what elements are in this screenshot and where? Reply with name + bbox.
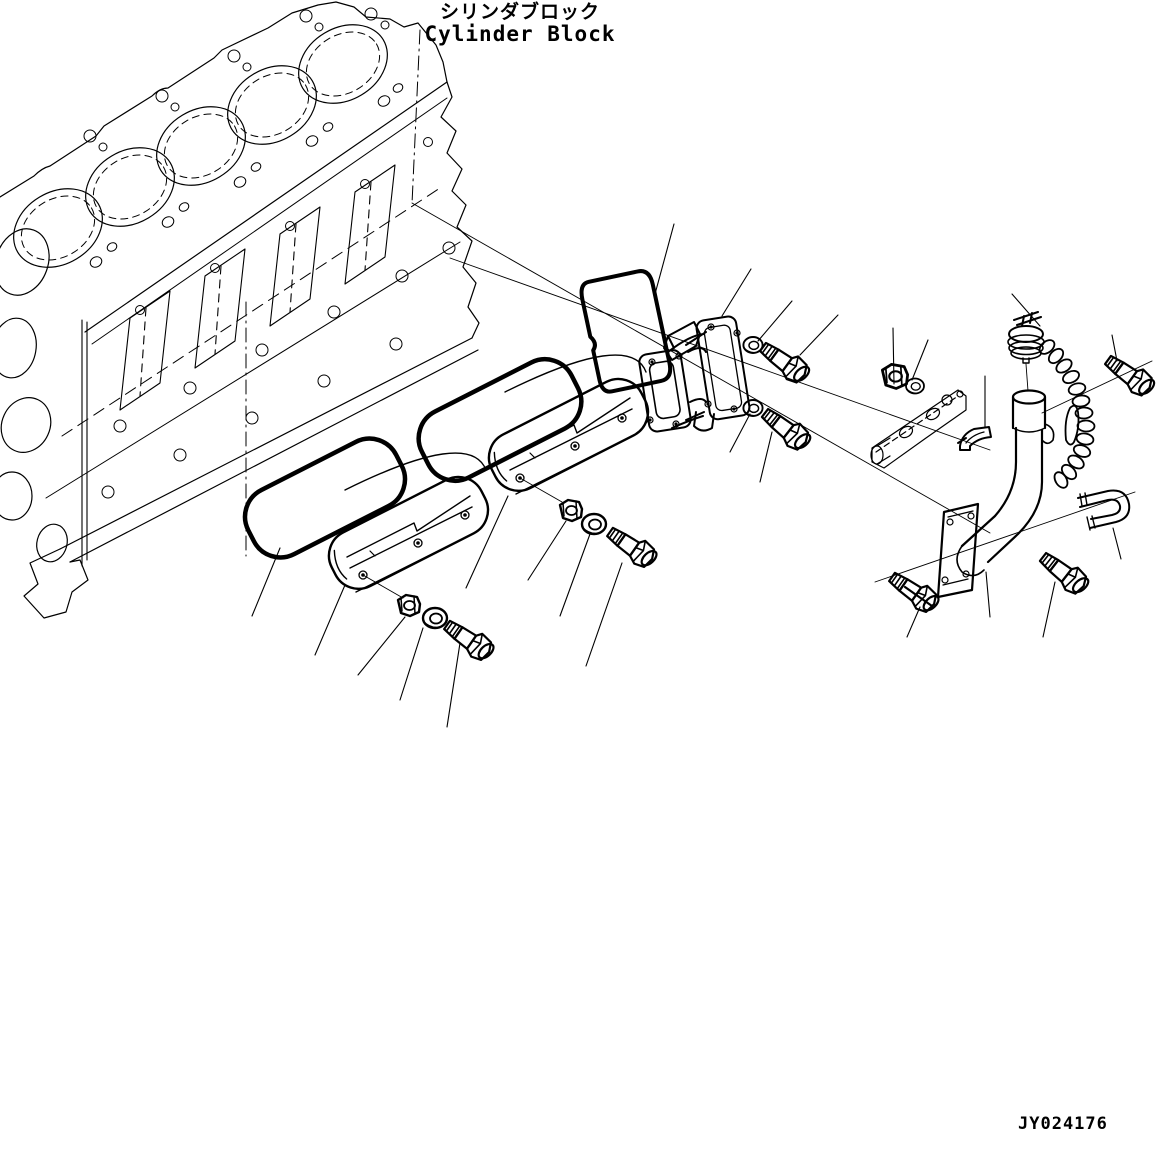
cover-gasket-lower xyxy=(235,428,416,568)
tube-flange xyxy=(938,504,984,597)
clamp-seat xyxy=(958,427,991,450)
cover-housing xyxy=(638,315,750,432)
bolt-lower-cover xyxy=(440,614,498,665)
bolt-housing-top xyxy=(756,336,814,388)
hex-nut-lower xyxy=(398,595,420,616)
washer-lower xyxy=(423,608,447,628)
leader-lines xyxy=(252,224,1121,727)
bolt-tube-right xyxy=(1036,547,1094,600)
housing-gasket xyxy=(579,269,673,394)
drawing-number: JY024176 xyxy=(1018,1114,1108,1134)
washer-housing-bottom xyxy=(743,400,762,416)
bolt-housing-bottom xyxy=(758,403,816,456)
cylinder-block xyxy=(0,2,479,618)
hex-nut-bracket xyxy=(882,364,907,388)
parts-diagram: シリンダブロック Cylinder Block xyxy=(0,0,1163,1163)
bolt-cap-side xyxy=(1101,349,1159,401)
oil-filler-tube xyxy=(938,391,1054,598)
washer-bracket xyxy=(906,379,924,394)
hex-nut-upper xyxy=(560,500,582,521)
bolt-upper-cover xyxy=(603,521,661,572)
bracket xyxy=(871,390,966,468)
washer-upper xyxy=(582,514,606,534)
bolt-tube-long xyxy=(885,566,943,617)
diagram-canvas xyxy=(0,0,1163,1163)
